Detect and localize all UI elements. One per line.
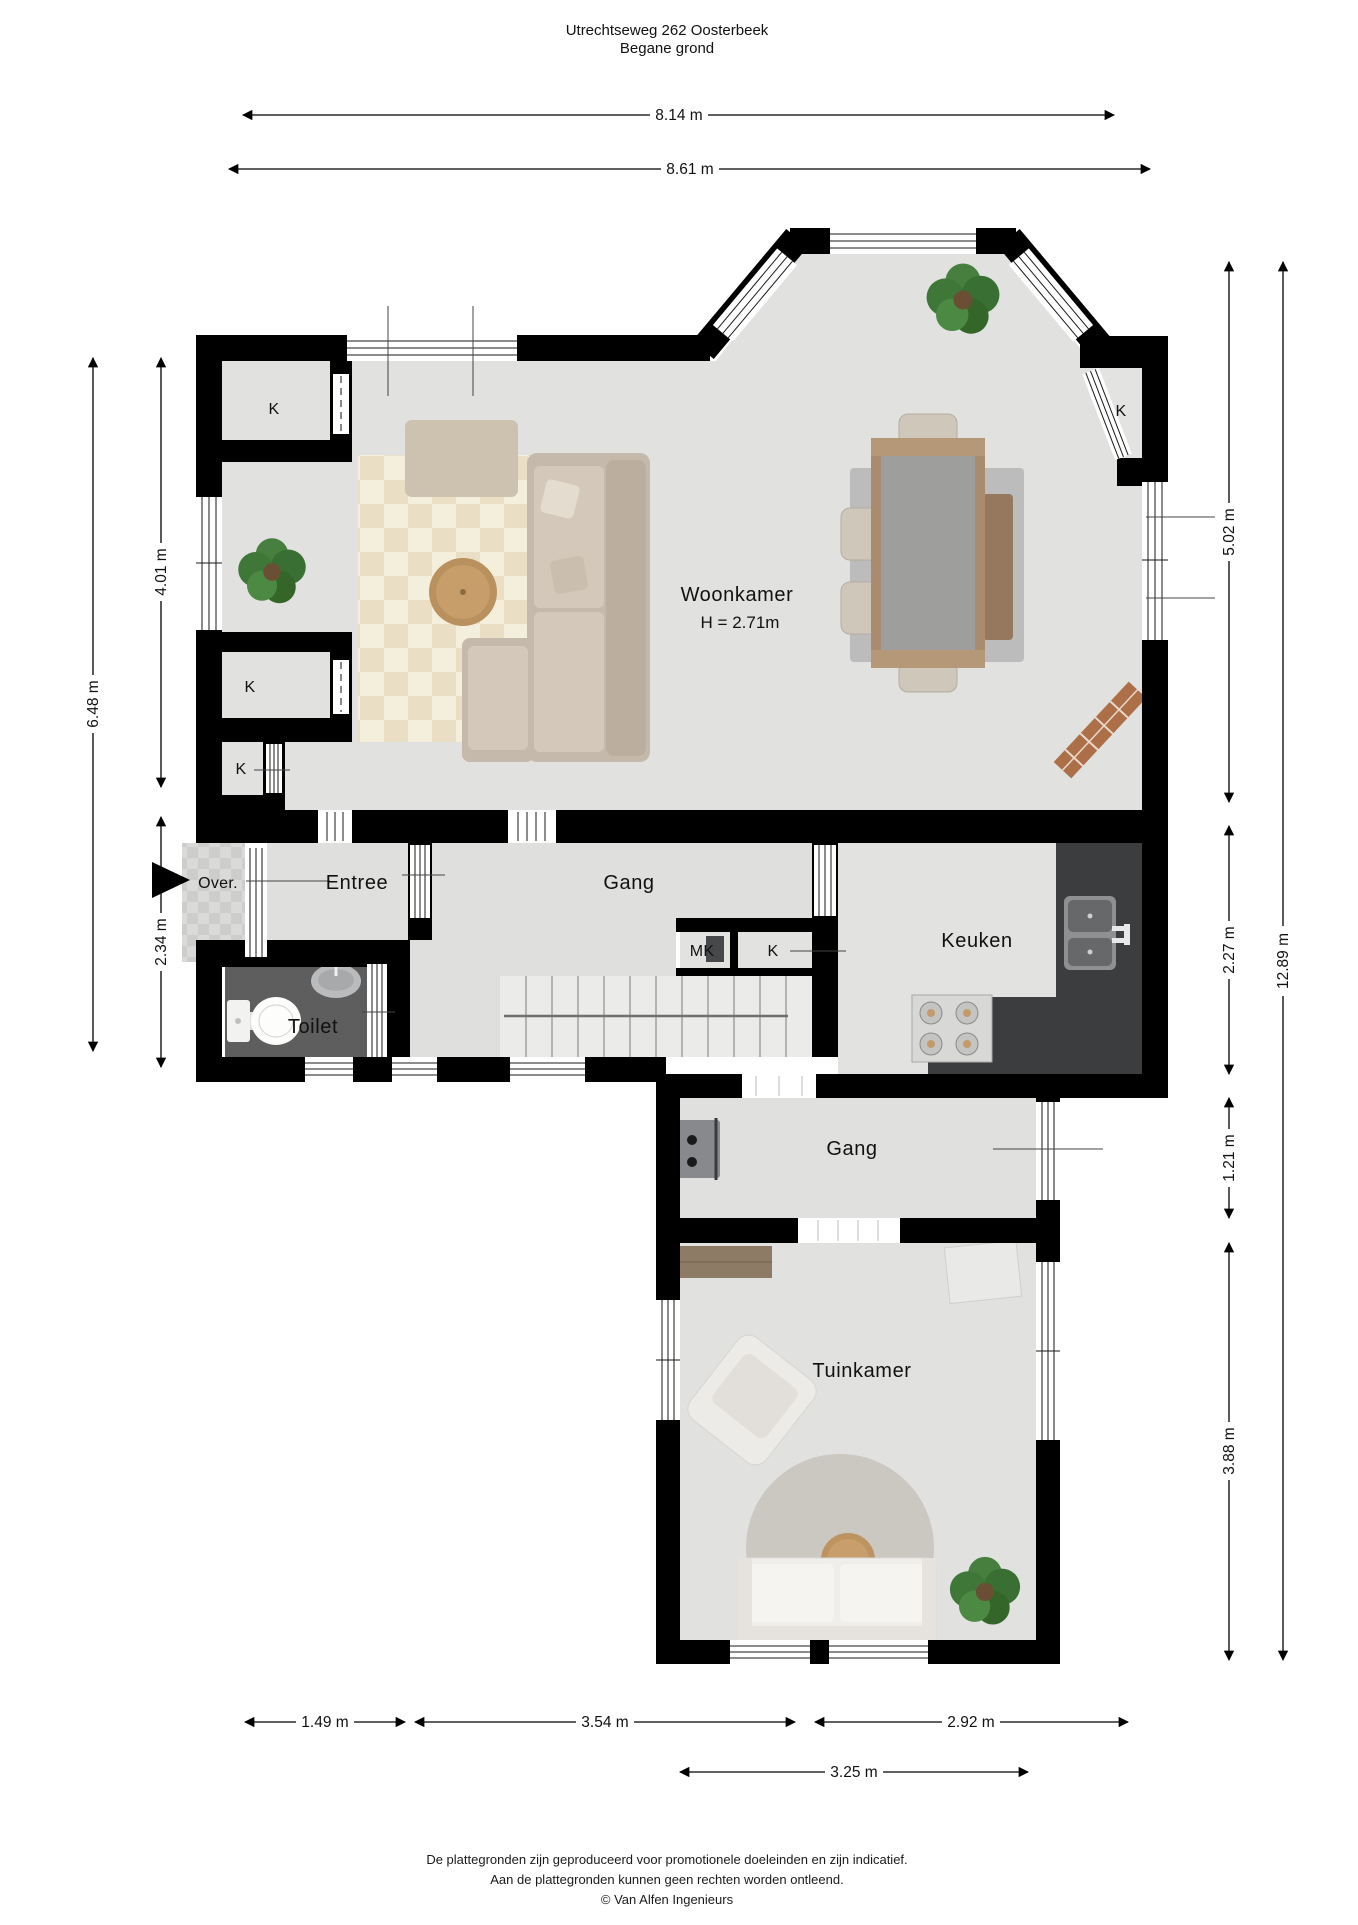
opening-stairs-gang — [742, 1074, 816, 1098]
dim-8-61: 8.61 m — [666, 161, 713, 178]
window-tuin-bottom-1 — [730, 1640, 810, 1664]
window-bottom-2 — [392, 1057, 437, 1082]
floorplan-page: Woonkamer H = 2.71m Entree Gang Keuken T… — [0, 0, 1358, 1920]
label-gang-boven: Gang — [603, 872, 654, 894]
window-extension-left — [656, 1300, 680, 1420]
dim-6-48: 6.48 m — [85, 680, 102, 727]
label-toilet: Toilet — [288, 1016, 338, 1038]
boiler — [678, 1118, 720, 1180]
label-tuinkamer: Tuinkamer — [812, 1360, 911, 1382]
footer-line3: © Van Alfen Ingenieurs — [601, 1892, 734, 1907]
entree-gang-door — [410, 845, 430, 918]
dim-12-89: 12.89 m — [1275, 933, 1292, 989]
window-bottom-1 — [305, 1057, 353, 1082]
dim-1-49: 1.49 m — [301, 1714, 348, 1731]
window-bottom-3 — [510, 1057, 585, 1082]
label-k1: K — [269, 401, 280, 418]
window-right — [1142, 482, 1168, 640]
dim-1-21: 1.21 m — [1221, 1134, 1238, 1181]
label-k-tr: K — [1116, 403, 1127, 420]
footer-line2: Aan de plattegronden kunnen geen rechten… — [490, 1872, 843, 1887]
floor-plan-svg: Woonkamer H = 2.71m Entree Gang Keuken T… — [0, 0, 1358, 1920]
toilet-sink — [311, 964, 361, 998]
window-top — [347, 335, 517, 361]
divider-door-1 — [318, 810, 352, 843]
k2-door — [333, 660, 349, 714]
desk — [944, 1240, 1021, 1303]
garden-hall-door — [1036, 1102, 1060, 1200]
toilet-door — [367, 964, 387, 1057]
label-over: Over. — [198, 875, 238, 892]
wall-right — [1142, 336, 1168, 1098]
label-keuken: Keuken — [941, 930, 1012, 952]
dim-3-88: 3.88 m — [1221, 1427, 1238, 1474]
dim-4-01: 4.01 m — [153, 548, 170, 595]
plan-subtitle: Begane grond — [620, 40, 714, 57]
label-woonkamer-height: H = 2.71m — [701, 613, 780, 632]
hall-floor — [410, 940, 500, 1057]
window-bay-top — [830, 228, 976, 254]
footer-line1: De plattegronden zijn geproduceerd voor … — [426, 1852, 907, 1867]
dim-3-54: 3.54 m — [581, 1714, 628, 1731]
window-left — [196, 497, 222, 630]
divider-door-2 — [508, 810, 556, 843]
wall-toilet-top — [196, 940, 410, 967]
front-door — [245, 848, 267, 957]
garden-sofa — [738, 1558, 936, 1648]
dim-8-14: 8.14 m — [655, 107, 702, 124]
dim-2-27: 2.27 m — [1221, 926, 1238, 973]
coffee-table — [429, 558, 497, 626]
dim-2-92: 2.92 m — [947, 1714, 994, 1731]
ottoman — [405, 420, 518, 497]
kitchen-door — [814, 845, 836, 916]
label-k3: K — [236, 761, 247, 778]
window-tuin-bottom-2 — [829, 1640, 928, 1664]
dim-5-02: 5.02 m — [1221, 508, 1238, 555]
label-k2: K — [245, 679, 256, 696]
window-extension-right — [1036, 1262, 1060, 1440]
label-mk: MK — [690, 943, 715, 960]
plan-title: Utrechtseweg 262 Oosterbeek — [566, 22, 769, 39]
dim-3-25: 3.25 m — [830, 1764, 877, 1781]
label-entree: Entree — [326, 872, 389, 894]
wall-extension-top — [656, 1074, 1168, 1098]
opening-gang-tuin — [798, 1218, 900, 1243]
k3-door — [266, 744, 282, 793]
k1-door — [333, 374, 349, 434]
label-gang-beneden: Gang — [826, 1138, 877, 1160]
label-k-mid: K — [768, 943, 779, 960]
stove — [912, 995, 992, 1062]
wall-under-closet — [1117, 458, 1168, 486]
label-woonkamer: Woonkamer — [681, 584, 794, 606]
dim-2-34: 2.34 m — [153, 918, 170, 965]
